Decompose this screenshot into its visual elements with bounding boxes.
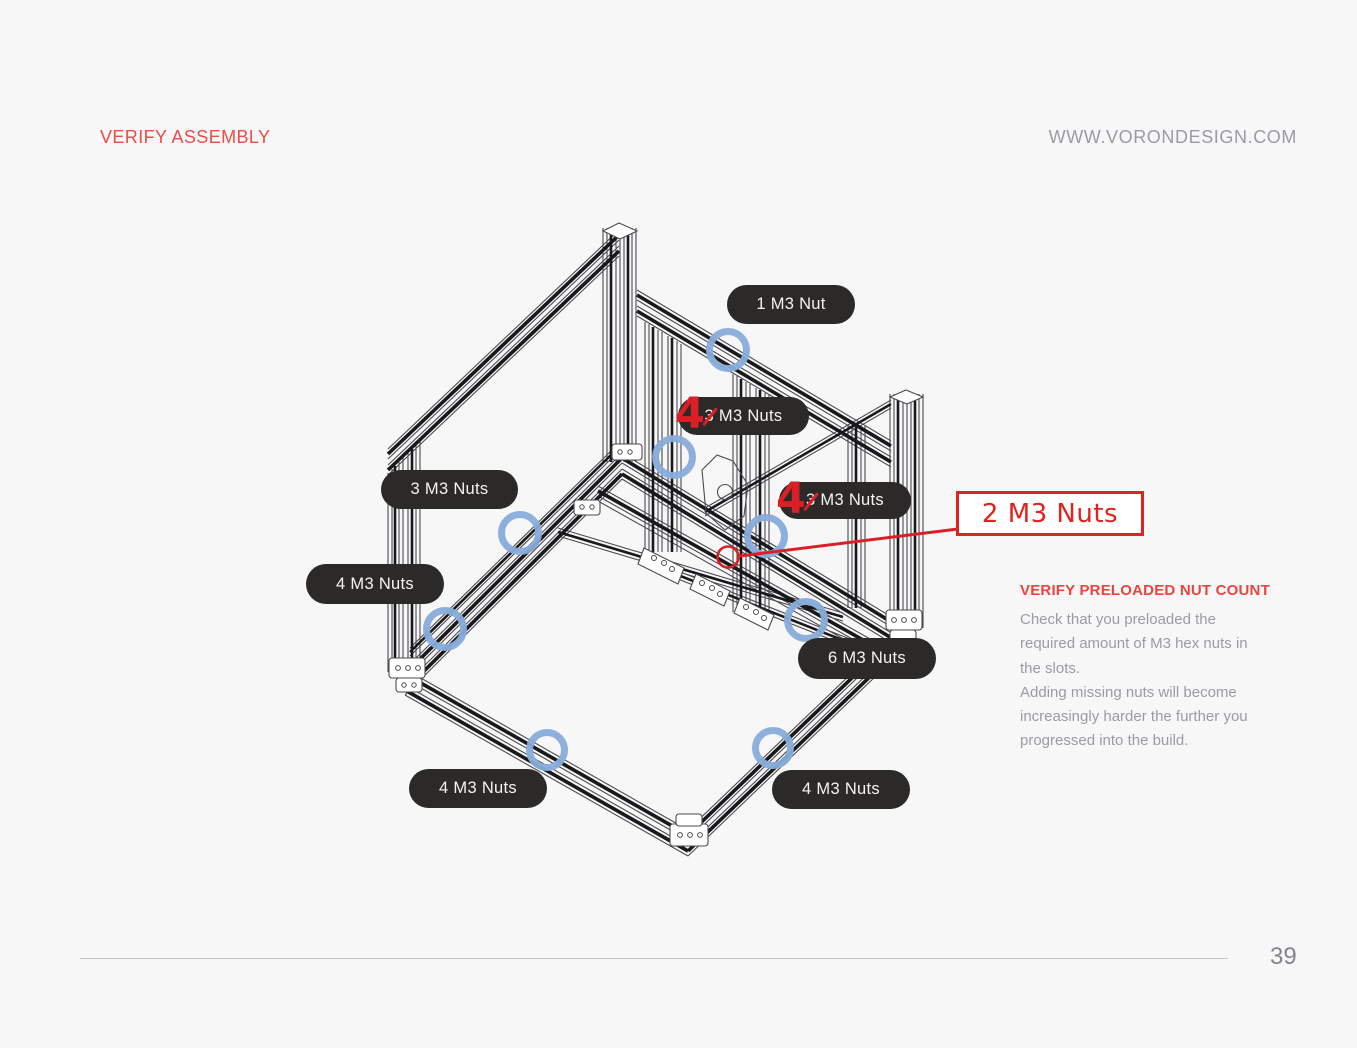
callout-right-mid: 6 M3 Nuts	[798, 638, 936, 679]
callout-label: 4 M3 Nuts	[336, 575, 414, 594]
callout-left-mid: 4 M3 Nuts	[306, 564, 444, 604]
note-title: VERIFY PRELOADED NUT COUNT	[1020, 582, 1290, 599]
page-number: 39	[1270, 943, 1297, 971]
callout-bottom-left: 4 M3 Nuts	[409, 769, 547, 808]
callout-label: 3 M3 Nuts	[806, 491, 884, 510]
callout-left-upper: 3 M3 Nuts	[381, 470, 518, 509]
callout-label: 1 M3 Nut	[756, 295, 825, 314]
correction-number: 4	[776, 477, 806, 520]
note-line: required amount of M3 hex nuts in	[1020, 632, 1290, 656]
note-line: increasingly harder the further you	[1020, 705, 1290, 729]
callout-gantry-right: 4 3 M3 Nuts	[779, 482, 911, 519]
callout-top: 1 M3 Nut	[727, 285, 855, 324]
manual-page: VERIFY ASSEMBLY WWW.VORONDESIGN.COM	[0, 0, 1357, 1048]
verify-note: VERIFY PRELOADED NUT COUNT Check that yo…	[1020, 582, 1290, 754]
printer-frame-illustration	[0, 0, 1357, 1048]
callout-label: 4 M3 Nuts	[802, 780, 880, 799]
callout-gantry-left: 4 3 M3 Nuts	[678, 397, 809, 435]
callout-bottom-right: 4 M3 Nuts	[772, 770, 910, 809]
callout-label: 3 M3 Nuts	[705, 407, 783, 426]
note-line: progressed into the build.	[1020, 729, 1290, 753]
correction-number: 4	[675, 392, 705, 435]
nut-marker-gantry-left	[656, 439, 693, 476]
callout-label: 6 M3 Nuts	[828, 649, 906, 668]
note-line: Check that you preloaded the	[1020, 608, 1290, 632]
red-leader-line	[740, 529, 958, 556]
correction-box-label: 2 M3 Nuts	[982, 499, 1118, 529]
struck-original-count: 3	[705, 407, 714, 426]
callout-label: 4 M3 Nuts	[439, 779, 517, 798]
note-line: the slots.	[1020, 657, 1290, 681]
struck-original-count: 3	[806, 491, 815, 510]
correction-box: 2 M3 Nuts	[956, 491, 1144, 536]
callout-label: 3 M3 Nuts	[411, 480, 489, 499]
footer-rule	[80, 958, 1228, 959]
note-line: Adding missing nuts will become	[1020, 681, 1290, 705]
callout-label-rest: M3 Nuts	[816, 491, 884, 509]
callout-label-rest: M3 Nuts	[714, 407, 782, 425]
